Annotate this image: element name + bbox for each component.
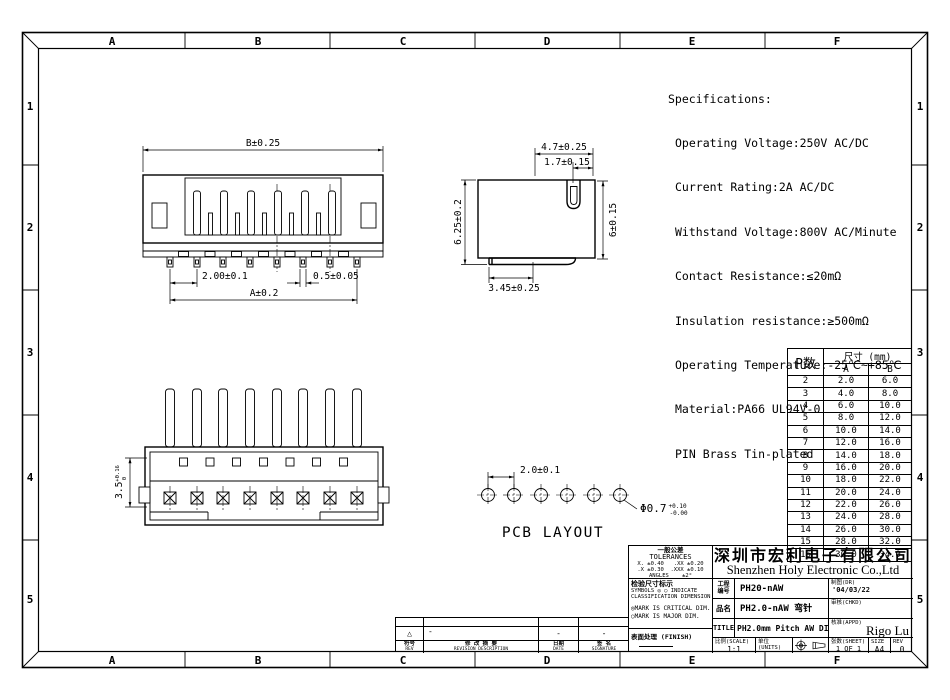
spec-line: Insulation resistance:≥500mΩ	[668, 314, 902, 329]
title-label: TITLE	[713, 619, 735, 638]
finish-label: 表面处理 (FINISH)	[629, 629, 712, 641]
cell-p: 6	[788, 425, 824, 437]
table-row: 58.012.0	[788, 413, 912, 425]
drawn-value: '04/03/22	[829, 586, 913, 594]
zone-row-label: 3	[27, 346, 34, 359]
front-feet	[167, 257, 360, 267]
cell-p: 2	[788, 376, 824, 388]
part-no-label-line: 编号	[717, 589, 729, 596]
size-table-header-b: B	[869, 364, 912, 376]
zone-row-label: 2	[27, 221, 34, 234]
header-en: SIGNATURE	[579, 647, 629, 652]
zone-row-label: 3	[917, 346, 924, 359]
cell-a: 18.0	[824, 475, 869, 487]
revision-empty-cell	[396, 618, 424, 627]
cell-b: 24.0	[869, 487, 912, 499]
inspection-label-cn: 检验尺寸标示	[629, 579, 712, 588]
revision-date-cell: -	[539, 627, 579, 641]
dim-label: 2.00±0.1	[202, 271, 248, 282]
cell-p: 14	[788, 524, 824, 536]
zone-col-label: B	[255, 654, 262, 667]
dim-label: B±0.25	[246, 138, 280, 149]
revision-col-header-signature: 签 名 SIGNATURE	[579, 641, 629, 653]
zone-col-label: A	[109, 654, 116, 667]
cell-a: 16.0	[824, 462, 869, 474]
cell-p: 10	[788, 475, 824, 487]
rev-value: 0	[891, 645, 913, 653]
rev-cell: REV 0	[891, 638, 913, 653]
dim-label: 0.5±0.05	[313, 271, 359, 282]
cell-b: 12.0	[869, 413, 912, 425]
size-table-header-a: A	[824, 364, 869, 376]
dim-label: A±0.2	[250, 288, 279, 299]
size-label: SIZE	[869, 638, 890, 645]
cell-a: 4.0	[824, 388, 869, 400]
tolerance-box: 一般公差 TOLERANCES X. ±0.40 .XX ±0.20 .X ±0…	[629, 546, 713, 579]
zone-row-label: 1	[27, 100, 34, 113]
zone-col-label: B	[255, 35, 262, 48]
cell-p: 12	[788, 499, 824, 511]
checked-label: 审核(CHKD)	[829, 599, 913, 606]
cell-a: 14.0	[824, 450, 869, 462]
cell-b: 6.0	[869, 376, 912, 388]
specifications-title: Specifications:	[668, 92, 902, 107]
cell-p: 7	[788, 437, 824, 449]
table-row: 1324.028.0	[788, 512, 912, 524]
cell-b: 28.0	[869, 512, 912, 524]
cell-a: 6.0	[824, 400, 869, 412]
pcb-layout-label: PCB LAYOUT	[502, 525, 604, 541]
third-angle-projection-icon	[793, 638, 829, 653]
table-row: 610.014.0	[788, 425, 912, 437]
cell-b: 18.0	[869, 450, 912, 462]
pcb-layout: 2.0±0.1 Φ0.7+0.10-0.00 PCB LAYOUT	[477, 465, 688, 541]
cell-b: 14.0	[869, 425, 912, 437]
revision-triangle-icon: △	[396, 627, 424, 641]
cell-a: 20.0	[824, 487, 869, 499]
part-no-value: PH20-nAW	[735, 579, 829, 599]
table-row: 1222.026.0	[788, 499, 912, 511]
table-row: 916.020.0	[788, 462, 912, 474]
table-row: 814.018.0	[788, 450, 912, 462]
cell-a: 8.0	[824, 413, 869, 425]
inspection-symbols-line: CLASSIFICATION DIMENSION	[629, 594, 712, 600]
cell-p: 13	[788, 512, 824, 524]
company-name-cn: 深圳市宏利电子有限公司	[713, 547, 913, 564]
spec-line: Current Rating:2A AC/DC	[668, 180, 902, 195]
zone-row-label: 1	[917, 100, 924, 113]
dim-label: 1.7±0.15	[544, 157, 590, 168]
cell-b: 26.0	[869, 499, 912, 511]
scale-cell: 比例(SCALE) 1:1	[713, 638, 756, 653]
cell-b: 8.0	[869, 388, 912, 400]
finish-blank-line	[639, 646, 673, 647]
units-value: mm	[756, 651, 792, 653]
zone-row-label: 5	[27, 593, 34, 606]
cell-b: 16.0	[869, 437, 912, 449]
zone-col-label: F	[834, 654, 841, 667]
mark-major-note: ○MARK IS MAJOR DIM.	[629, 613, 712, 621]
zone-row-label: 4	[917, 471, 924, 484]
revision-empty-cell	[539, 618, 579, 627]
product-value: PH2.0-nAW 弯针	[735, 599, 829, 619]
cell-p: 4	[788, 400, 824, 412]
spec-line: Contact Resistance:≤20mΩ	[668, 269, 902, 284]
revision-strip: △ - - - 符号 REV 修 改 摘 要 REVISION DESCRIPT…	[395, 617, 628, 652]
cell-b: 30.0	[869, 524, 912, 536]
drawn-cell: 制图(DR) '04/03/22	[829, 579, 913, 599]
revision-empty-cell	[579, 618, 629, 627]
zone-col-label: A	[109, 35, 116, 48]
dim-label: 6±0.15	[608, 203, 619, 237]
drawing-sheet: A B C D E F A B C D E F 1 2 3 4 5 1 2 3 …	[0, 0, 950, 700]
zone-col-label: E	[689, 654, 696, 667]
dim-label: 4.7±0.25	[541, 142, 587, 153]
scale-label: 比例(SCALE)	[713, 638, 755, 645]
revision-col-header-desc: 修 改 摘 要 REVISION DESCRIPTION	[424, 641, 539, 653]
revision-col-header-date: 日期 DATE	[539, 641, 579, 653]
cell-p: 11	[788, 487, 824, 499]
bottom-pins	[166, 389, 362, 447]
checked-cell: 审核(CHKD)	[829, 599, 913, 619]
tolerance-title-en: TOLERANCES	[629, 554, 712, 561]
product-label: 品名	[713, 599, 735, 619]
size-table-header-p: P数	[788, 349, 824, 376]
table-row: 1120.024.0	[788, 487, 912, 499]
table-row: 34.08.0	[788, 388, 912, 400]
part-no-label: 工程 编号	[713, 579, 735, 599]
sheet-value: 1 OF 1	[829, 645, 868, 653]
dim-label: Φ0.7+0.10-0.00	[640, 502, 688, 517]
projection-symbol-graphic	[794, 639, 828, 652]
company-name-en: Shenzhen Holy Electronic Co.,Ltd	[713, 564, 913, 577]
finish-box: 表面处理 (FINISH)	[629, 629, 713, 653]
revision-empty-cell	[424, 618, 539, 627]
sheet-label: 张数(SHEET)	[829, 638, 868, 645]
front-notches	[179, 252, 349, 257]
sheet-cell: 张数(SHEET) 1 OF 1	[829, 638, 869, 653]
header-en: REVISION DESCRIPTION	[424, 647, 538, 652]
dim-label: 2.0±0.1	[520, 465, 560, 476]
front-view: B±0.25	[143, 138, 383, 304]
header-en: DATE	[539, 647, 578, 652]
zone-col-label: C	[400, 35, 407, 48]
rev-label: REV	[891, 638, 913, 645]
table-row: 46.010.0	[788, 400, 912, 412]
pcb-holes	[477, 484, 631, 506]
cell-p: 9	[788, 462, 824, 474]
units-label: 单位(UNITS)	[756, 638, 792, 651]
cell-b: 22.0	[869, 475, 912, 487]
size-table: P数 尺寸 (mm) A B 22.06.0 34.08.0 46.010.0 …	[787, 348, 912, 562]
size-table-header-dim: 尺寸 (mm)	[824, 349, 912, 364]
side-view: 4.7±0.25 1.7±0.15 6.25±0.2 6±0.15 3.45±0…	[453, 142, 619, 294]
revision-description-cell: -	[424, 627, 539, 641]
dim-label: 3.5+0.160	[114, 465, 128, 499]
mark-critical-note: ◎MARK IS CRITICAL DIM.	[629, 600, 712, 613]
cell-a: 24.0	[824, 512, 869, 524]
cell-a: 12.0	[824, 437, 869, 449]
units-cell: 单位(UNITS) mm	[756, 638, 793, 653]
table-row: 1426.030.0	[788, 524, 912, 536]
cell-a: 10.0	[824, 425, 869, 437]
scale-value: 1:1	[713, 645, 755, 653]
cell-p: 8	[788, 450, 824, 462]
header-en: REV	[396, 647, 423, 652]
cell-b: 10.0	[869, 400, 912, 412]
zone-col-label: E	[689, 35, 696, 48]
cell-a: 22.0	[824, 499, 869, 511]
inspection-box: 检验尺寸标示 SYMBOLS ◎ ○ INDICATE CLASSIFICATI…	[629, 579, 713, 629]
spec-line: Withstand Voltage:800V AC/Minute	[668, 225, 902, 240]
spec-line: Operating Voltage:250V AC/DC	[668, 136, 902, 151]
size-value: A4	[869, 645, 890, 653]
cell-b: 20.0	[869, 462, 912, 474]
zone-row-label: 2	[917, 221, 924, 234]
title-block: 一般公差 TOLERANCES X. ±0.40 .XX ±0.20 .X ±0…	[628, 545, 912, 652]
drawn-label: 制图(DR)	[829, 579, 913, 586]
approved-cell: 核准(APPD) Rigo Lu	[829, 619, 913, 638]
table-row: 1018.022.0	[788, 475, 912, 487]
size-cell: SIZE A4	[869, 638, 891, 653]
dim-label: 3.45±0.25	[488, 283, 539, 294]
zone-row-label: 4	[27, 471, 34, 484]
table-row: 22.06.0	[788, 376, 912, 388]
zone-col-label: D	[544, 35, 551, 48]
dim-label: 6.25±0.2	[453, 199, 464, 245]
revision-signature-cell: -	[579, 627, 629, 641]
table-row: 712.016.0	[788, 437, 912, 449]
revision-col-header-rev: 符号 REV	[396, 641, 424, 653]
cell-a: 2.0	[824, 376, 869, 388]
cell-p: 3	[788, 388, 824, 400]
title-value: PH2.0mm Pitch AW DIP CONN	[735, 619, 829, 638]
zone-col-label: C	[400, 654, 407, 667]
cell-a: 26.0	[824, 524, 869, 536]
cell-p: 5	[788, 413, 824, 425]
zone-row-label: 5	[917, 593, 924, 606]
company-box: 深圳市宏利电子有限公司 Shenzhen Holy Electronic Co.…	[713, 546, 913, 579]
bottom-view: 3.5+0.160	[114, 389, 389, 525]
zone-col-label: D	[544, 654, 551, 667]
zone-col-label: F	[834, 35, 841, 48]
approved-value: Rigo Lu	[866, 623, 909, 638]
